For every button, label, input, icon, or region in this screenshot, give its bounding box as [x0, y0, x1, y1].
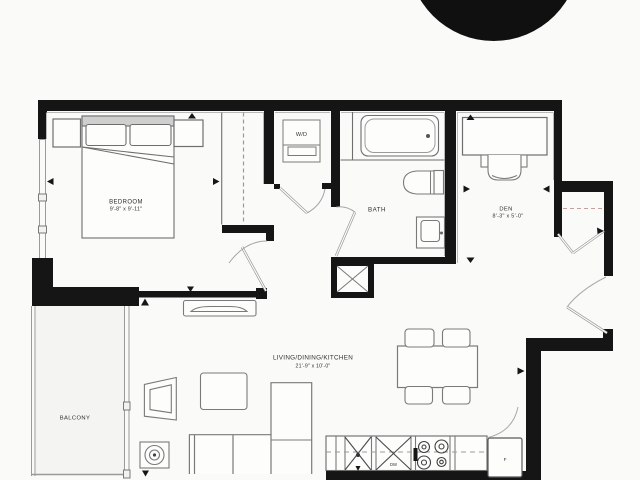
svg-text:BEDROOM: BEDROOM — [109, 200, 143, 206]
svg-text:DW: DW — [390, 462, 397, 467]
svg-text:BATH: BATH — [368, 207, 386, 214]
svg-text:LIVING/DINING/KITCHEN: LIVING/DINING/KITCHEN — [273, 355, 353, 362]
svg-text:F: F — [504, 457, 507, 462]
svg-text:8'-3" x 5'-0": 8'-3" x 5'-0" — [492, 214, 523, 220]
svg-text:W/D: W/D — [296, 132, 307, 138]
svg-text:DEN: DEN — [499, 207, 512, 213]
svg-text:BALCONY: BALCONY — [60, 416, 91, 422]
svg-text:9'-8" x 9'-11": 9'-8" x 9'-11" — [110, 207, 143, 213]
svg-text:21'-9" x 10'-0": 21'-9" x 10'-0" — [296, 364, 331, 370]
